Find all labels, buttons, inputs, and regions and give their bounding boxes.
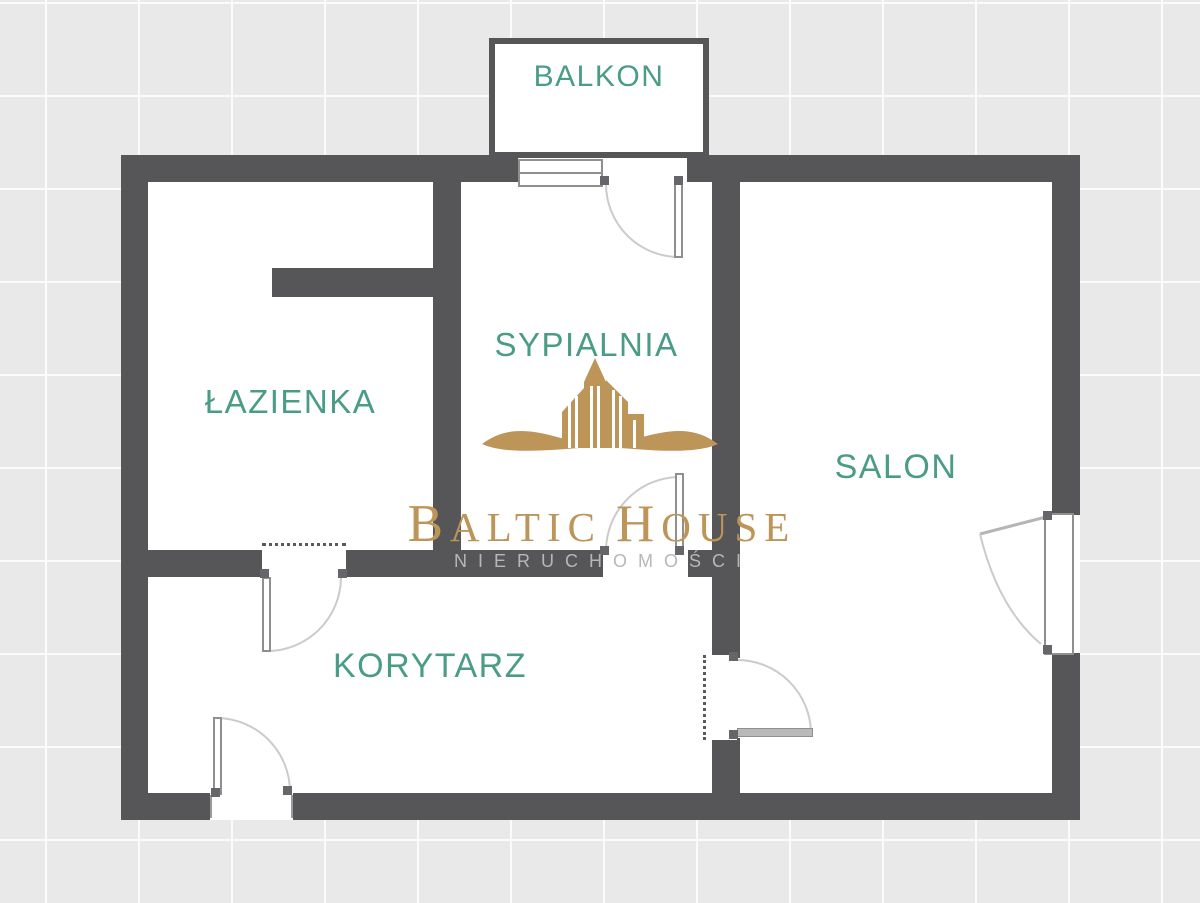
salon-window-door-arc bbox=[980, 534, 1041, 644]
salon-window-door-hinge-bottom bbox=[1043, 645, 1052, 654]
balcony-door-arc bbox=[606, 184, 679, 257]
bathroom-door-leaf bbox=[262, 577, 271, 652]
brand-word1-rest: ALTIC bbox=[450, 504, 602, 550]
floor-plan-canvas: BALKON ŁAZIENKA SYPIALNIA SALON KORYTARZ… bbox=[0, 0, 1200, 903]
salon-door-arc bbox=[737, 660, 811, 733]
brand-word2-rest: OUSE bbox=[661, 504, 796, 550]
brand-logo-wordmark: BALTICHOUSE bbox=[382, 494, 822, 554]
balcony-door-hinge bbox=[600, 176, 609, 185]
room-label-salon: SALON bbox=[740, 448, 1052, 487]
entry-door-hinge bbox=[283, 786, 292, 795]
brand-word2-initial: H bbox=[602, 495, 661, 553]
bathroom-door-arc bbox=[267, 578, 341, 651]
salon-door-hinge bbox=[729, 652, 738, 661]
entry-door-leaf bbox=[213, 717, 222, 795]
room-label-balkon: BALKON bbox=[489, 60, 709, 94]
entry-door-arc bbox=[218, 718, 290, 791]
salon-door-leaf bbox=[737, 728, 813, 737]
room-label-lazienka: ŁAZIENKA bbox=[148, 383, 433, 421]
entry-door-pivot bbox=[211, 788, 220, 797]
brand-logo-subtitle: NIERUCHOMOŚCI bbox=[454, 551, 752, 572]
balcony-door-leaf bbox=[674, 182, 683, 258]
salon-window-door-hinge-top bbox=[1043, 511, 1052, 520]
bathroom-door-pivot bbox=[260, 569, 269, 578]
room-label-korytarz: KORYTARZ bbox=[148, 647, 712, 686]
bathroom-door-hinge bbox=[338, 569, 347, 578]
brand-logo-building-icon bbox=[478, 350, 722, 470]
salon-door-pivot bbox=[729, 730, 738, 739]
balcony-door-pivot bbox=[674, 176, 683, 185]
salon-window-door-leaf-line bbox=[980, 517, 1046, 534]
brand-word1-initial: B bbox=[408, 495, 450, 553]
